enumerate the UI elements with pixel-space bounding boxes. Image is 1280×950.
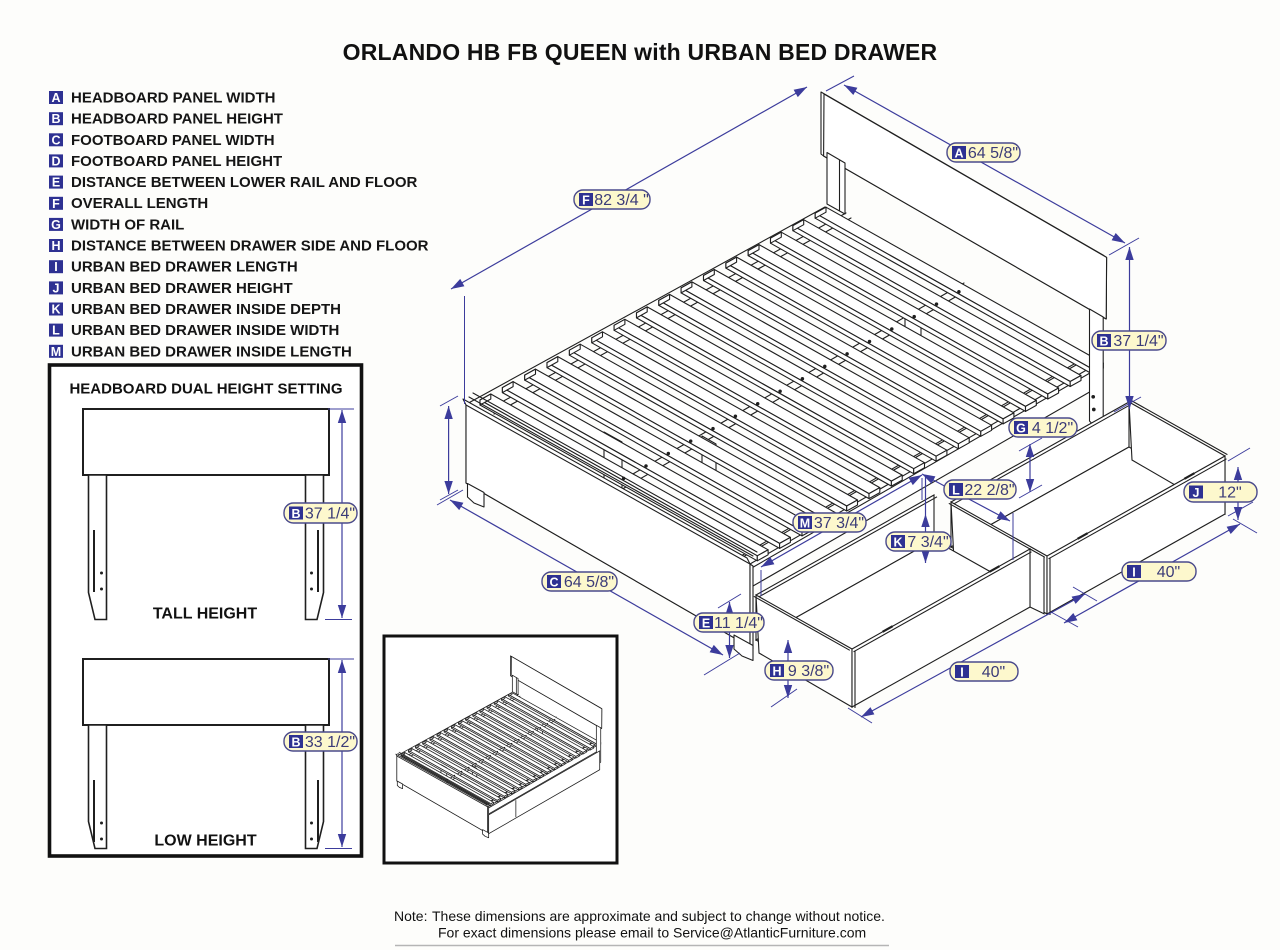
svg-text:H: H	[51, 239, 60, 253]
svg-text:LOW HEIGHT: LOW HEIGHT	[154, 833, 256, 850]
svg-text:H: H	[772, 664, 781, 678]
svg-text:HEADBOARD PANEL WIDTH: HEADBOARD PANEL WIDTH	[71, 90, 275, 107]
svg-text:I: I	[1132, 565, 1135, 579]
svg-text:12": 12"	[1218, 484, 1241, 501]
svg-text:Note:: Note:	[394, 908, 427, 924]
svg-text:64 5/8": 64 5/8"	[968, 145, 1018, 162]
svg-text:G: G	[1016, 421, 1026, 435]
svg-text:11 1/4": 11 1/4"	[714, 615, 763, 632]
svg-text:URBAN BED DRAWER INSIDE LENGTH: URBAN BED DRAWER INSIDE LENGTH	[71, 343, 352, 360]
svg-text:I: I	[960, 665, 963, 679]
svg-text:DISTANCE BETWEEN LOWER RAIL AN: DISTANCE BETWEEN LOWER RAIL AND FLOOR	[71, 174, 418, 191]
svg-text:4 1/2": 4 1/2"	[1032, 420, 1073, 437]
svg-text:37 1/4": 37 1/4"	[305, 505, 355, 522]
svg-text:B: B	[1099, 334, 1108, 348]
svg-text:URBAN BED DRAWER HEIGHT: URBAN BED DRAWER HEIGHT	[71, 280, 293, 297]
svg-text:G: G	[51, 218, 61, 232]
svg-text:F: F	[52, 197, 60, 211]
svg-text:D: D	[51, 154, 60, 168]
svg-text:40": 40"	[1157, 564, 1180, 581]
svg-text:40": 40"	[982, 664, 1005, 681]
svg-text:64 5/8": 64 5/8"	[564, 574, 614, 591]
svg-text:B: B	[291, 735, 300, 749]
svg-text:A: A	[954, 146, 963, 160]
svg-text:7 3/4": 7 3/4"	[907, 534, 948, 551]
svg-text:DISTANCE BETWEEN DRAWER SIDE A: DISTANCE BETWEEN DRAWER SIDE AND FLOOR	[71, 238, 429, 255]
svg-text:E: E	[702, 616, 710, 630]
svg-text:C: C	[549, 575, 558, 589]
svg-text:L: L	[952, 483, 960, 497]
svg-text:M: M	[800, 516, 810, 530]
svg-text:K: K	[893, 535, 902, 549]
svg-text:FOOTBOARD PANEL HEIGHT: FOOTBOARD PANEL HEIGHT	[71, 153, 282, 170]
svg-text:E: E	[52, 176, 60, 190]
svg-text:FOOTBOARD PANEL WIDTH: FOOTBOARD PANEL WIDTH	[71, 132, 275, 149]
svg-text:A: A	[51, 91, 60, 105]
svg-text:J: J	[1193, 486, 1200, 500]
svg-text:OVERALL LENGTH: OVERALL LENGTH	[71, 195, 208, 212]
svg-text:J: J	[53, 281, 60, 295]
svg-text:37 3/4": 37 3/4"	[814, 515, 864, 532]
svg-text:These dimensions are approxima: These dimensions are approximate and sub…	[432, 908, 885, 924]
svg-text:URBAN BED DRAWER LENGTH: URBAN BED DRAWER LENGTH	[71, 259, 298, 276]
svg-text:L: L	[52, 324, 60, 338]
svg-text:URBAN BED DRAWER INSIDE DEPTH: URBAN BED DRAWER INSIDE DEPTH	[71, 301, 341, 318]
svg-text:HEADBOARD PANEL HEIGHT: HEADBOARD PANEL HEIGHT	[71, 111, 283, 128]
svg-text:37 1/4": 37 1/4"	[1113, 333, 1163, 350]
svg-text:K: K	[51, 303, 60, 317]
svg-text:82 3/4 ": 82 3/4 "	[594, 192, 649, 209]
svg-text:HEADBOARD DUAL HEIGHT SETTING: HEADBOARD DUAL HEIGHT SETTING	[69, 381, 342, 398]
svg-text:C: C	[51, 133, 60, 147]
svg-text:WIDTH OF RAIL: WIDTH OF RAIL	[71, 216, 184, 233]
svg-text:9 3/8": 9 3/8"	[788, 663, 829, 680]
svg-text:For exact dimensions please em: For exact dimensions please email to Ser…	[438, 925, 866, 941]
svg-text:F: F	[582, 193, 590, 207]
svg-text:URBAN BED DRAWER INSIDE WIDTH: URBAN BED DRAWER INSIDE WIDTH	[71, 322, 339, 339]
svg-text:TALL HEIGHT: TALL HEIGHT	[153, 606, 258, 623]
svg-text:B: B	[291, 507, 300, 521]
svg-text:B: B	[51, 112, 60, 126]
svg-text:M: M	[51, 345, 61, 359]
svg-text:33 1/2": 33 1/2"	[305, 734, 355, 751]
svg-text:I: I	[54, 260, 57, 274]
svg-text:22 2/8": 22 2/8"	[964, 482, 1014, 499]
svg-text:ORLANDO HB FB QUEEN with URBAN: ORLANDO HB FB QUEEN with URBAN BED DRAWE…	[343, 39, 938, 65]
